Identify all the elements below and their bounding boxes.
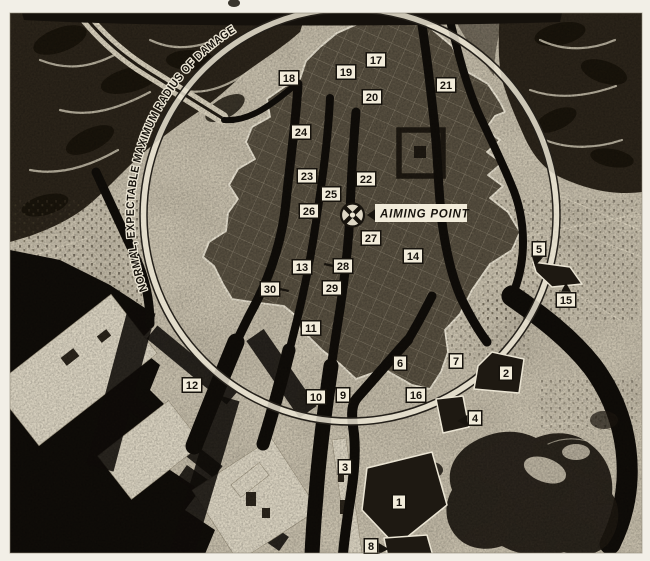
marker-number: 20 <box>366 92 378 104</box>
aiming-point-label: AIMING POINT <box>367 204 470 222</box>
map-marker-12: 12 <box>182 378 202 393</box>
map-marker-17: 17 <box>366 53 386 68</box>
marker-number: 25 <box>325 189 337 201</box>
map-marker-9: 9 <box>336 388 350 403</box>
marker-number: 8 <box>368 541 374 553</box>
map-marker-7: 7 <box>449 354 463 369</box>
marker-number: 27 <box>365 233 377 245</box>
marker-number: 17 <box>370 55 382 67</box>
marker-number: 1 <box>396 497 402 509</box>
map-marker-1: 1 <box>392 495 406 510</box>
marker-number: 5 <box>536 244 542 256</box>
map-marker-29: 29 <box>322 281 342 296</box>
marker-number: 22 <box>360 174 372 186</box>
marker-number: 30 <box>264 284 276 296</box>
marker-number: 9 <box>340 390 346 402</box>
map-marker-23: 23 <box>297 169 317 184</box>
marker-number: 26 <box>303 206 315 218</box>
map-marker-27: 27 <box>361 231 381 246</box>
marker-number: 6 <box>397 358 403 370</box>
marker-number: 7 <box>453 356 459 368</box>
marker-number: 10 <box>310 392 322 404</box>
marker-number: 19 <box>340 67 352 79</box>
map-marker-25: 25 <box>321 187 341 202</box>
marker-number: 23 <box>301 171 313 183</box>
map-marker-18: 18 <box>279 71 299 86</box>
aiming-point-symbol <box>341 204 364 227</box>
marker-number: 12 <box>186 380 198 392</box>
marker-number: 4 <box>472 413 479 425</box>
marker-number: 16 <box>410 390 422 402</box>
map-marker-21: 21 <box>436 78 456 93</box>
map-marker-16: 16 <box>406 388 426 403</box>
map-marker-2: 2 <box>499 366 513 381</box>
marker-number: 24 <box>295 127 308 139</box>
map-marker-10: 10 <box>306 390 326 405</box>
marker-number: 2 <box>503 368 509 380</box>
map-marker-11: 11 <box>301 321 321 336</box>
map-marker-3: 3 <box>338 460 352 475</box>
map-marker-22: 22 <box>356 172 376 187</box>
marker-number: 29 <box>326 283 338 295</box>
map-marker-13: 13 <box>292 260 312 275</box>
marker-number: 3 <box>342 462 348 474</box>
marker-number: 15 <box>560 295 572 307</box>
map-marker-19: 19 <box>336 65 356 80</box>
marker-number: 21 <box>440 80 452 92</box>
map-marker-24: 24 <box>291 125 311 140</box>
map-marker-20: 20 <box>362 90 382 105</box>
marker-number: 13 <box>296 262 308 274</box>
marker-number: 18 <box>283 73 295 85</box>
map-marker-14: 14 <box>403 249 423 264</box>
map-marker-6: 6 <box>393 356 407 371</box>
marker-number: 11 <box>305 323 317 335</box>
marker-number: 28 <box>337 261 349 273</box>
svg-text:AIMING POINT: AIMING POINT <box>379 209 470 221</box>
scanned-aerial-photo: NORMAL, EXPECTABLE MAXIMUM RADIUS OF DAM… <box>0 0 650 561</box>
map-marker-26: 26 <box>299 204 319 219</box>
marker-number: 14 <box>407 251 420 263</box>
